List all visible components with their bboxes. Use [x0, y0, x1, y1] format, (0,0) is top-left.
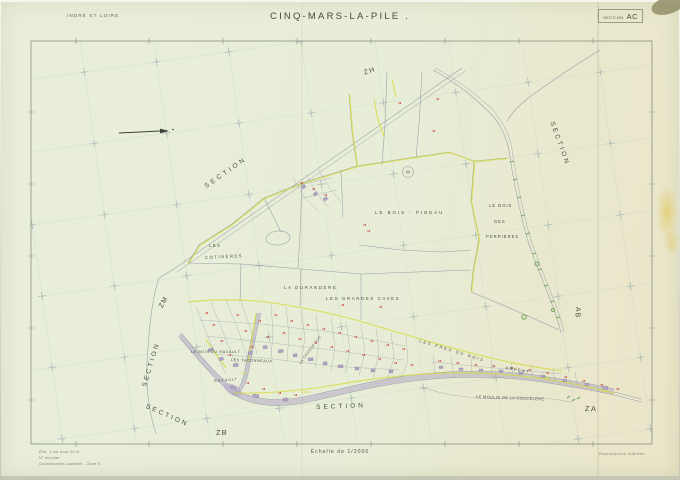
place-label-grandes-caves: LES GRANDES CAVES [326, 297, 400, 301]
place-label-perrieres: PERRIÈRES [486, 235, 519, 239]
zone-label-za: ZA [585, 405, 598, 413]
edge-stain [664, 228, 679, 256]
zone-label-zb: ZB [216, 429, 228, 437]
margin-note-line: Coordonnées Lambert - Zone II [39, 461, 101, 467]
place-label-durandere: LA DURANDÈRE [284, 286, 337, 290]
margin-note-right: Reproduction interdite [599, 452, 645, 456]
place-label-bois-du-racault: LE BOIS DU RACAULT [191, 351, 240, 355]
place-label-bois-pineau: LE BOIS - PINEAU [375, 211, 444, 215]
scale-note: Échelle de 1/2000 [311, 449, 370, 455]
place-label-des: DES [494, 220, 506, 224]
fold-line [597, 2, 599, 476]
place-label-le-bois: LE BOIS [489, 204, 512, 208]
place-label-les: LES [209, 244, 221, 248]
zone-label-ab: AB [574, 307, 581, 319]
scanned-cadastral-sheet: INDRE ET LOIRE CINQ-MARS-LA-PILE . SECTI… [1, 2, 679, 476]
fold-line [301, 2, 303, 476]
margin-notes: Éch. 1 cm pour 20 m N° du plan Coordonné… [39, 449, 101, 467]
